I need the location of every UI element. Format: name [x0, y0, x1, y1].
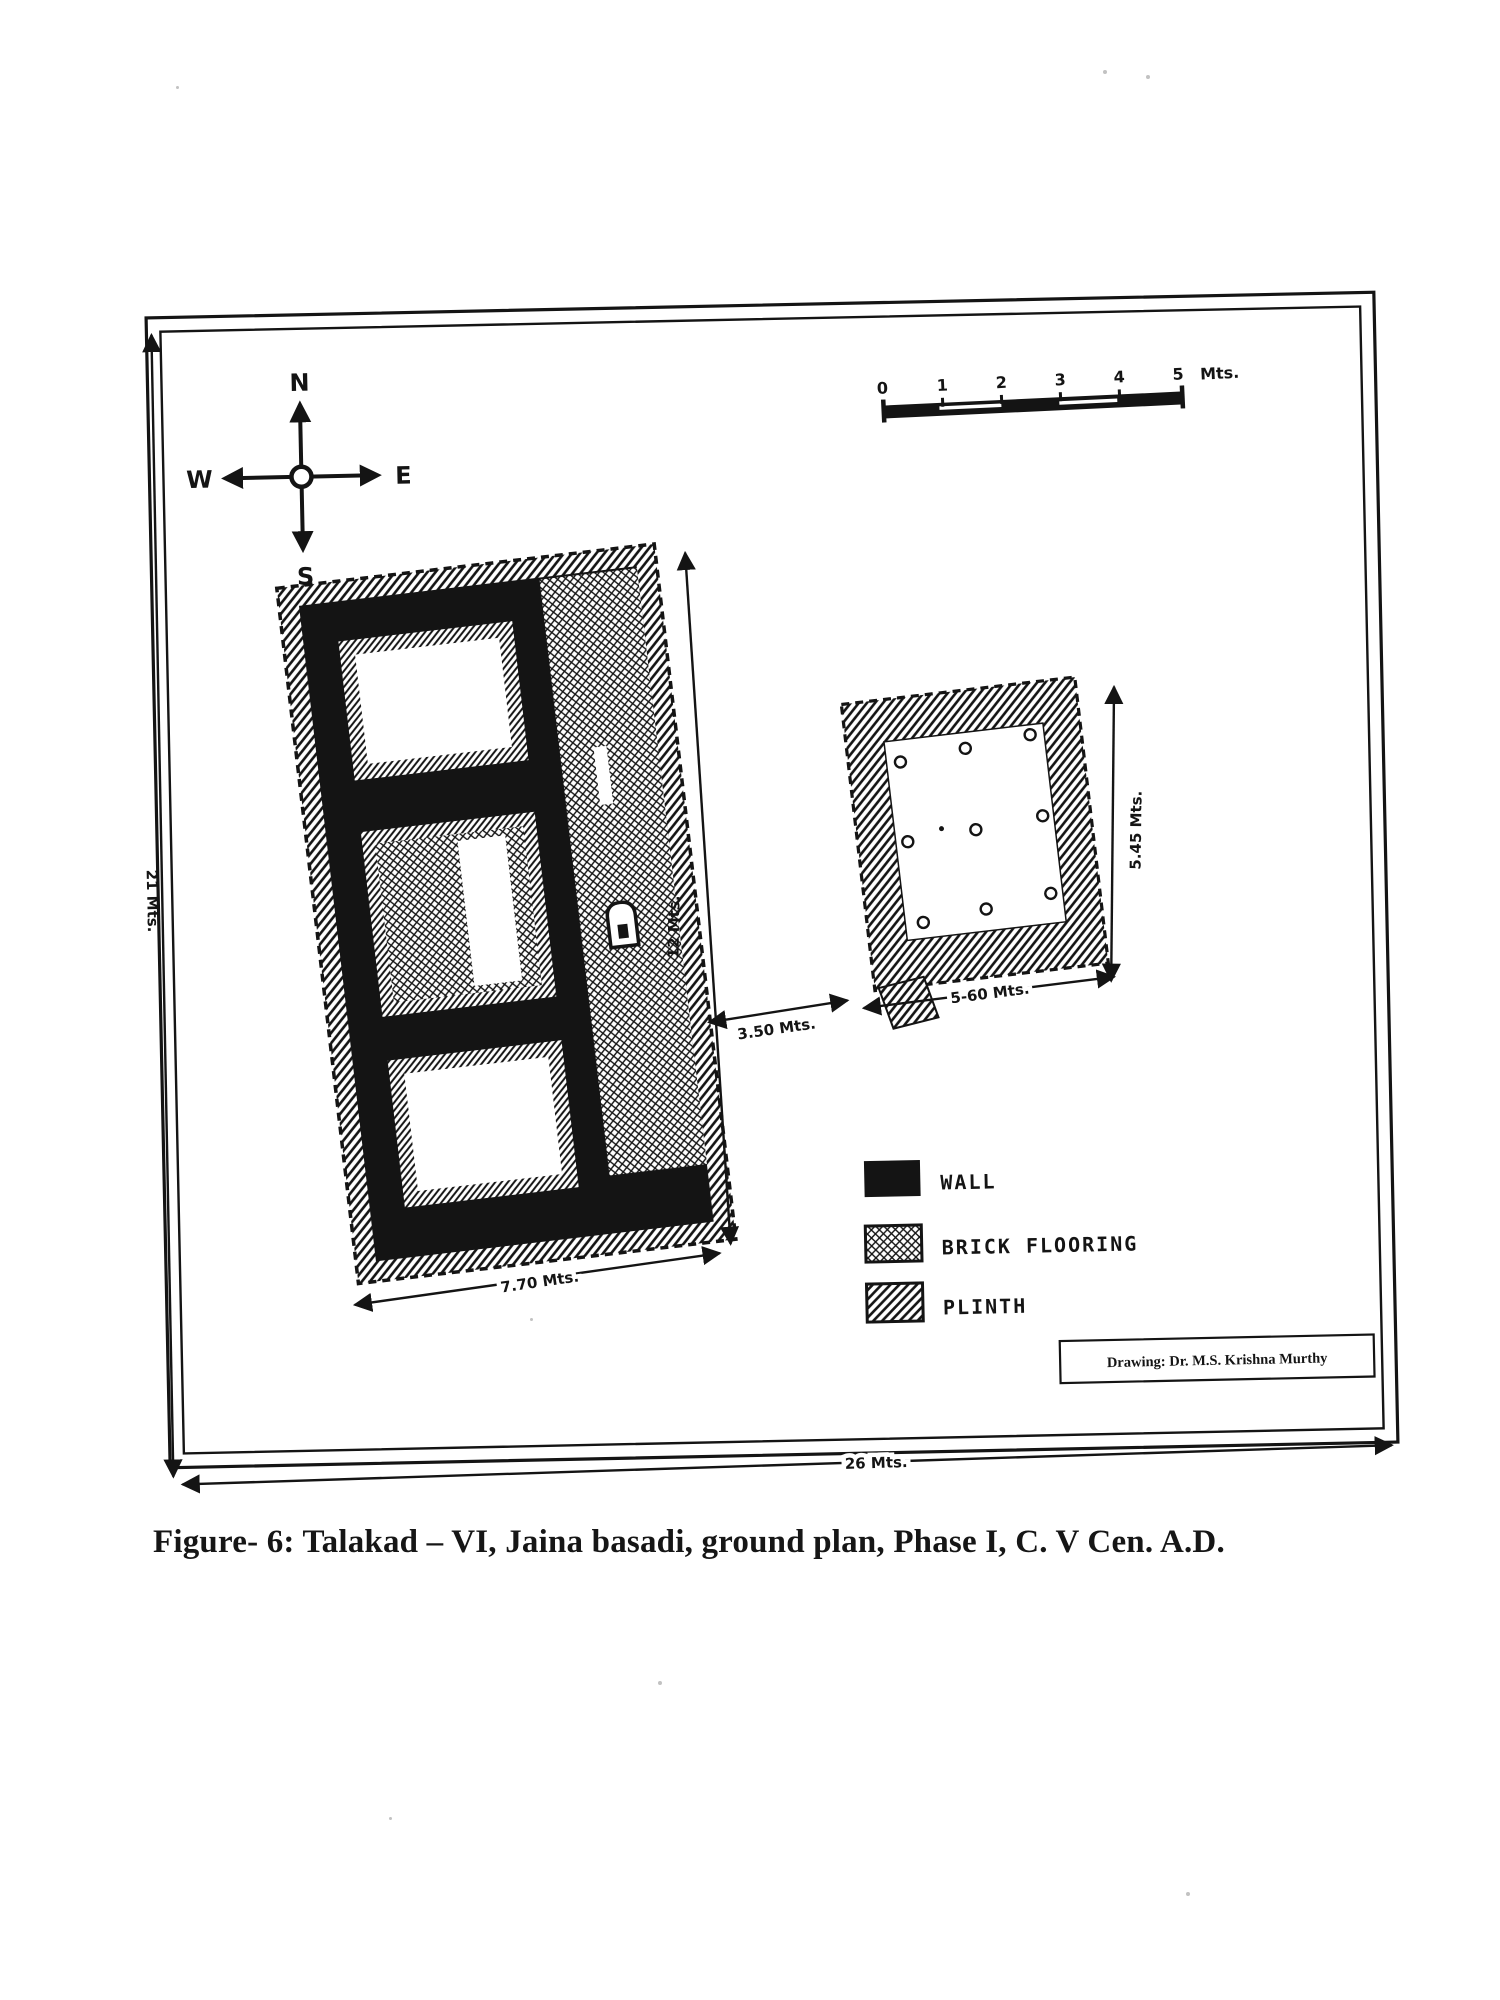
compass-west-label: W: [186, 466, 213, 495]
figure-caption: Figure- 6: Talakad – VI, Jaina basadi, g…: [153, 1524, 1423, 1561]
dim-gap: 3.50 Mts.: [709, 1000, 849, 1044]
dim-gap-label: 3.50 Mts.: [736, 1014, 817, 1043]
legend-wall-swatch: [864, 1160, 921, 1197]
ground-plan-figure: N S E W 0 1 2 3 4 5 Mts.: [0, 0, 1500, 2000]
scanned-page: N S E W 0 1 2 3 4 5 Mts.: [0, 0, 1500, 2000]
dim-mandapa-width-label: 5-60 Mts.: [949, 980, 1030, 1008]
legend-plinth-swatch: [866, 1283, 923, 1322]
scale-tick-2: 2: [995, 373, 1007, 393]
scale-tick-4: 4: [1113, 367, 1125, 387]
compass-center: [291, 467, 311, 487]
scale-bar-body: [883, 391, 1183, 418]
scale-tick-3: 3: [1054, 370, 1066, 390]
dim-basadi-width-label: 7.70 Mts.: [499, 1267, 580, 1296]
scale-unit-label: Mts.: [1200, 363, 1240, 384]
doorway-arch-icon: [606, 901, 639, 948]
dim-enclosure-height-label: 21 Mts.: [143, 869, 162, 932]
legend: WALL BRICK FLOORING PLINTH: [864, 1155, 1140, 1322]
dim-mandapa-depth-label: 5.45 Mts.: [1126, 791, 1145, 870]
scale-tick-0: 0: [876, 378, 888, 398]
compass-east-label: E: [395, 461, 412, 489]
compass-rose-icon: N S E W: [184, 366, 414, 593]
scale-tick-1: 1: [936, 376, 948, 396]
legend-plinth-label: PLINTH: [943, 1294, 1028, 1320]
dim-basadi-length-label: 12 Mts.: [665, 895, 684, 958]
credit-box: Drawing: Dr. M.S. Krishna Murthy: [1060, 1334, 1375, 1383]
legend-brick-swatch: [865, 1225, 922, 1262]
dim-enclosure-width-label: 26 Mts.: [845, 1453, 908, 1473]
legend-wall-label: WALL: [940, 1169, 997, 1194]
cell-3-floor: [404, 1057, 562, 1191]
scale-bar: 0 1 2 3 4 5 Mts.: [876, 362, 1240, 423]
dim-mandapa-depth: 5.45 Mts.: [1105, 686, 1150, 981]
mandapa-plan: [841, 677, 1113, 1030]
figure-frame-group: N S E W 0 1 2 3 4 5 Mts.: [131, 292, 1398, 1487]
cell-1-floor: [355, 638, 512, 764]
dim-enclosure-height: 21 Mts.: [131, 335, 175, 1477]
scale-tick-5: 5: [1172, 364, 1184, 384]
compass-north-label: N: [289, 369, 310, 397]
legend-brick-label: BRICK FLOORING: [941, 1231, 1138, 1259]
